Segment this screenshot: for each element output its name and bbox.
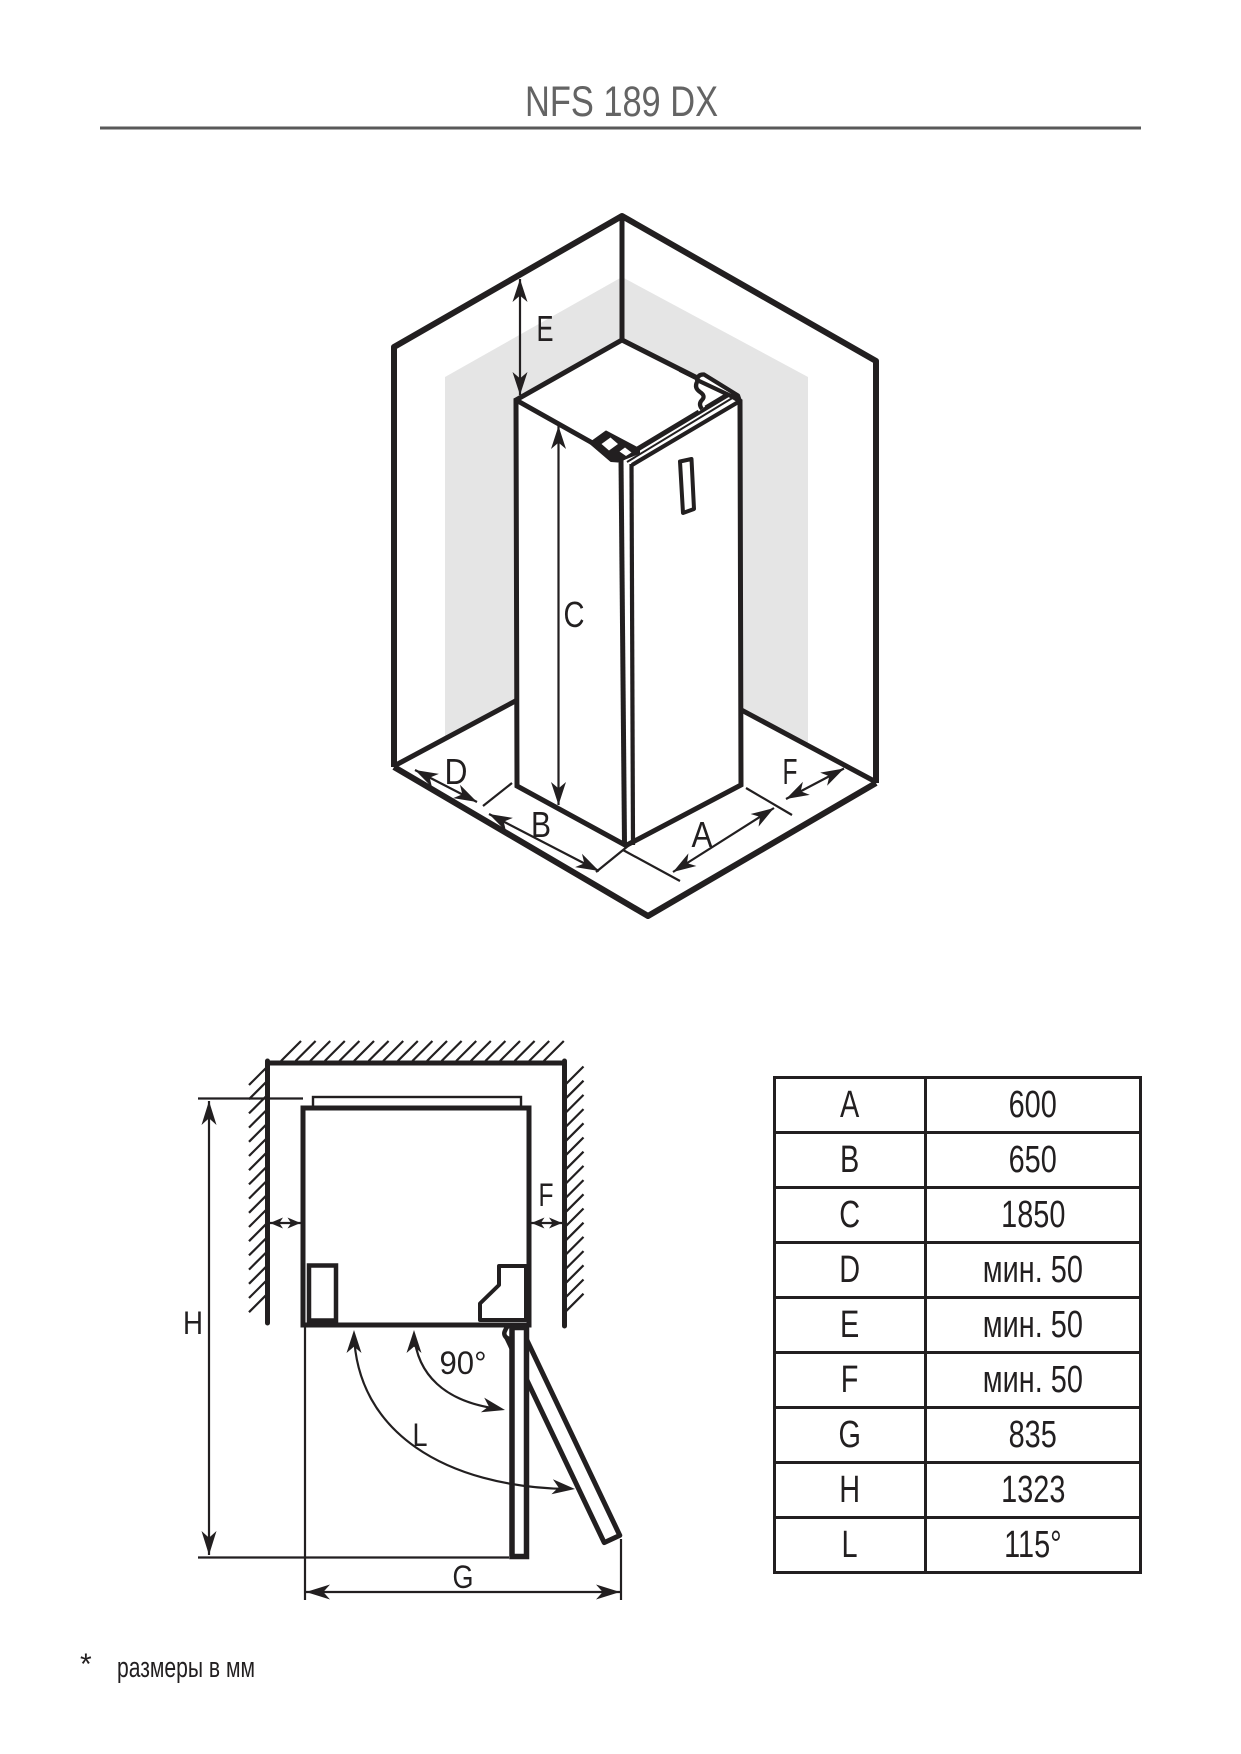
svg-text:E: E [537, 308, 554, 349]
svg-text:B: B [531, 804, 551, 845]
svg-text:A: A [692, 814, 713, 855]
svg-text:F: F [783, 751, 798, 792]
svg-text:H: H [183, 1305, 203, 1341]
svg-text:F: F [539, 1177, 554, 1213]
svg-text:*: * [80, 1648, 92, 1681]
svg-text:NFS 189 DX: NFS 189 DX [525, 78, 718, 126]
svg-text:L: L [413, 1417, 428, 1453]
svg-text:90°: 90° [440, 1345, 487, 1381]
svg-text:размеры в мм: размеры в мм [117, 1652, 255, 1684]
svg-text:C: C [564, 594, 585, 635]
svg-text:G: G [453, 1559, 474, 1595]
svg-text:D: D [445, 751, 468, 792]
